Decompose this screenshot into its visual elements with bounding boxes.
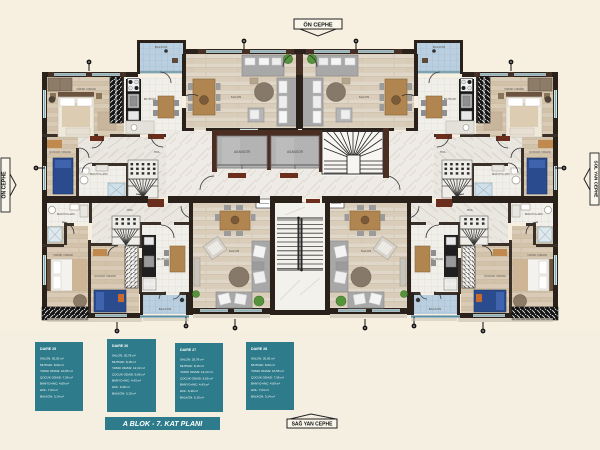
svg-text:A BLOK - 7. KAT PLANI: A BLOK - 7. KAT PLANI	[122, 419, 203, 428]
svg-text:MUTFAK: MUTFAK	[157, 257, 170, 261]
svg-text:MUTFAK: 8,00 m²: MUTFAK: 8,00 m²	[251, 363, 275, 367]
svg-text:HOL: HOL	[467, 208, 474, 212]
svg-text:SALON: SALON	[361, 249, 372, 253]
svg-text:BALKON: 3,19 m²: BALKON: 3,19 m²	[112, 391, 136, 395]
svg-text:BALKON: 3,14 m²: BALKON: 3,14 m²	[251, 394, 275, 398]
svg-text:ÇOCUK ODASI: 7,36 m²: ÇOCUK ODASI: 7,36 m²	[251, 375, 284, 379]
svg-text:ASANSÖR: ASANSÖR	[287, 150, 304, 154]
svg-text:HOL: 7,04 m²: HOL: 7,04 m²	[40, 388, 58, 392]
svg-text:HOL: HOL	[440, 150, 447, 154]
svg-text:MUTFAK: MUTFAK	[431, 257, 444, 261]
svg-text:DAIRE 27: DAIRE 27	[180, 348, 196, 352]
svg-text:BANYO+WC: 4,69 m²: BANYO+WC: 4,69 m²	[40, 382, 69, 386]
svg-text:SALON: 20,78 m²: SALON: 20,78 m²	[112, 354, 136, 358]
svg-text:YATAK ODASI: 12,13 m²: YATAK ODASI: 12,13 m²	[180, 370, 213, 374]
svg-text:MUTFAK: MUTFAK	[144, 97, 157, 101]
svg-text:ÇOCUK ODASI: 5,66 m²: ÇOCUK ODASI: 5,66 m²	[112, 372, 145, 376]
svg-text:YATAK ODASI: 10,55 m²: YATAK ODASI: 10,55 m²	[251, 369, 284, 373]
svg-text:ASANSÖR: ASANSÖR	[234, 150, 251, 154]
svg-text:BALKON: BALKON	[159, 307, 172, 311]
svg-text:BANYO+WC: BANYO+WC	[57, 212, 76, 216]
svg-text:ÇOCUK ODASI: ÇOCUK ODASI	[529, 150, 551, 154]
svg-text:ÇOCUK ODASI: 7,36 m²: ÇOCUK ODASI: 7,36 m²	[40, 375, 73, 379]
svg-text:BANYO+WC: BANYO+WC	[492, 172, 511, 176]
svg-text:MUTFAK: 8,16 m²: MUTFAK: 8,16 m²	[180, 364, 204, 368]
svg-text:HOL: HOL	[127, 208, 134, 212]
svg-text:BALKON: BALKON	[433, 45, 446, 49]
svg-text:SALON: SALON	[359, 95, 370, 99]
svg-text:YATAK ODASI: YATAK ODASI	[76, 87, 96, 91]
svg-text:ÖN CEPHE: ÖN CEPHE	[303, 21, 332, 28]
svg-text:YATAK ODASI: YATAK ODASI	[53, 253, 73, 257]
svg-text:ÖN CEPHE: ÖN CEPHE	[1, 171, 8, 199]
svg-text:HOL: HOL	[154, 150, 161, 154]
svg-text:YATAK ODASI: 10,55 m²: YATAK ODASI: 10,55 m²	[40, 369, 73, 373]
svg-text:ÇOCUK ODASI: ÇOCUK ODASI	[484, 274, 506, 278]
svg-text:BANYO+WC: BANYO+WC	[90, 172, 109, 176]
svg-text:DAIRE 28: DAIRE 28	[251, 347, 267, 351]
svg-text:BANYO+WC: 4,43 m²: BANYO+WC: 4,43 m²	[180, 383, 209, 387]
svg-text:SALON: 20,78 m²: SALON: 20,78 m²	[180, 358, 204, 362]
svg-text:SAĞ YAN CEPHE: SAĞ YAN CEPHE	[292, 420, 334, 428]
svg-text:ÇOCUK ODASI: 5,65 m²: ÇOCUK ODASI: 5,65 m²	[180, 376, 213, 380]
svg-text:BALKON: BALKON	[429, 307, 442, 311]
svg-text:SOL YAN CEPHE: SOL YAN CEPHE	[594, 161, 599, 198]
svg-text:DAIRE 26: DAIRE 26	[112, 344, 128, 348]
svg-text:YATAK ODASI: 12,13 m²: YATAK ODASI: 12,13 m²	[112, 366, 145, 370]
svg-text:BANYO+WC: BANYO+WC	[525, 212, 544, 216]
svg-text:BALKON: 5,19 m²: BALKON: 5,19 m²	[180, 395, 204, 399]
svg-text:BANYO+WC: 4,69 m²: BANYO+WC: 4,69 m²	[251, 382, 280, 386]
svg-text:MUTFAK: 8,00 m²: MUTFAK: 8,00 m²	[40, 363, 64, 367]
svg-text:SALON: SALON	[231, 95, 242, 99]
svg-text:BALKON: BALKON	[155, 45, 168, 49]
svg-text:ÇOCUK ODASI: ÇOCUK ODASI	[49, 150, 71, 154]
svg-text:SALON: 20,30 m²: SALON: 20,30 m²	[40, 357, 64, 361]
svg-text:DAIRE 25: DAIRE 25	[40, 347, 56, 351]
svg-text:HOL: 6,49 m²: HOL: 6,49 m²	[180, 389, 198, 393]
svg-text:SALON: 20,05 m²: SALON: 20,05 m²	[251, 357, 275, 361]
svg-text:YATAK ODASI: YATAK ODASI	[527, 253, 547, 257]
svg-text:MUTFAK: MUTFAK	[444, 97, 457, 101]
svg-text:SALON: SALON	[229, 249, 240, 253]
svg-text:HOL: 7,04 m²: HOL: 7,04 m²	[251, 388, 269, 392]
svg-text:HOL: 6,49 m²: HOL: 6,49 m²	[112, 385, 130, 389]
svg-text:YATAK ODASI: YATAK ODASI	[504, 87, 524, 91]
svg-text:MUTFAK: 8,18 m²: MUTFAK: 8,18 m²	[112, 360, 136, 364]
svg-text:BANYO+WC: 4,43 m²: BANYO+WC: 4,43 m²	[112, 379, 141, 383]
svg-text:ÇOCUK ODASI: ÇOCUK ODASI	[94, 274, 116, 278]
svg-text:BALKON: 3,14 m²: BALKON: 3,14 m²	[40, 394, 64, 398]
